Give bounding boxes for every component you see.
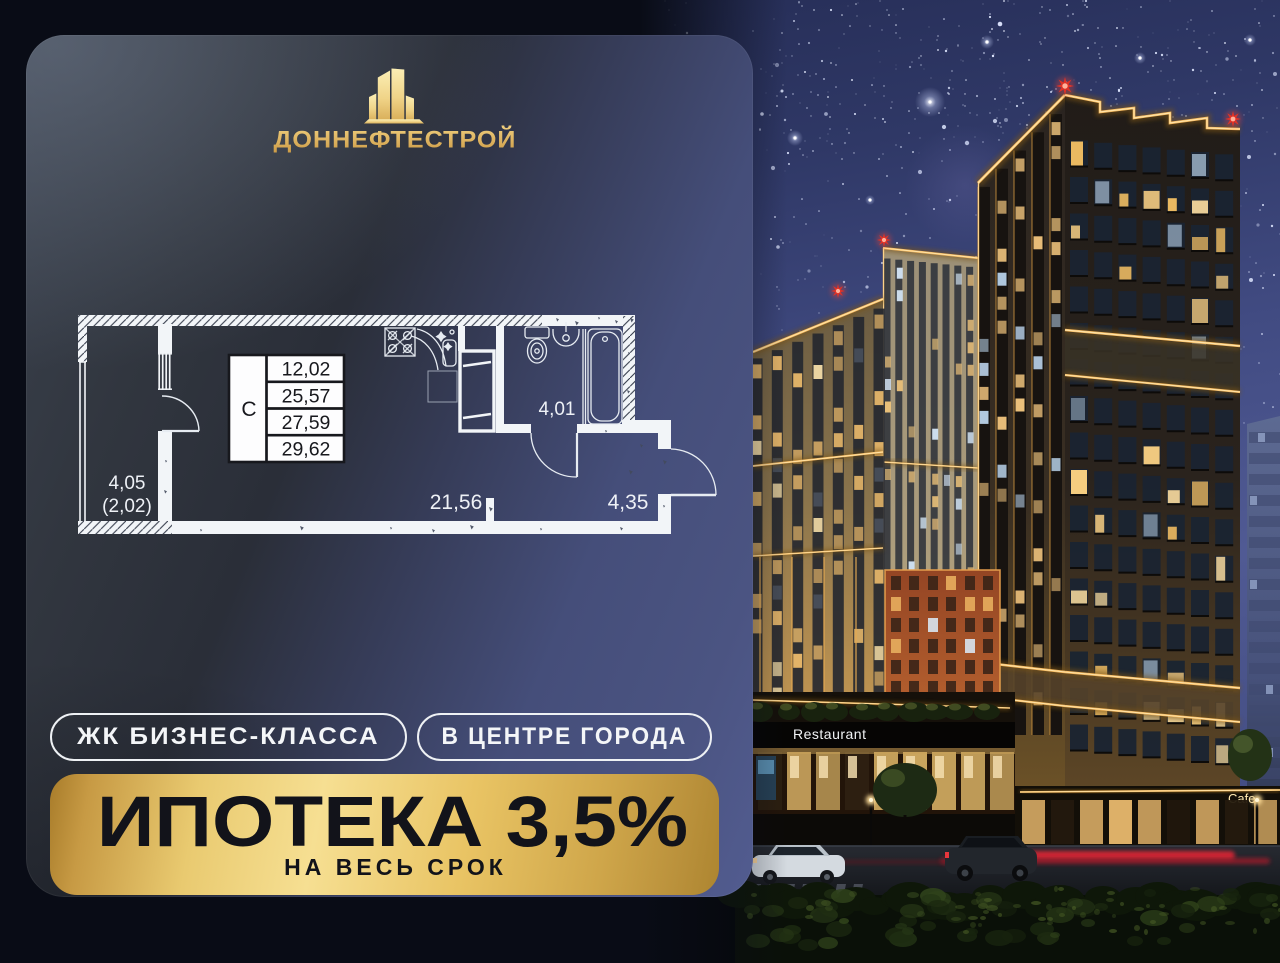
svg-text:С: С (241, 398, 256, 421)
svg-text:25,57: 25,57 (282, 386, 331, 408)
svg-text:4,05: 4,05 (109, 473, 146, 494)
svg-text:29,62: 29,62 (282, 439, 331, 461)
svg-text:21,56: 21,56 (430, 491, 483, 514)
svg-text:27,59: 27,59 (282, 412, 331, 434)
svg-text:4,01: 4,01 (539, 399, 576, 420)
svg-text:(2,02): (2,02) (102, 496, 152, 517)
svg-text:4,35: 4,35 (608, 491, 649, 514)
svg-text:12,02: 12,02 (282, 359, 331, 381)
